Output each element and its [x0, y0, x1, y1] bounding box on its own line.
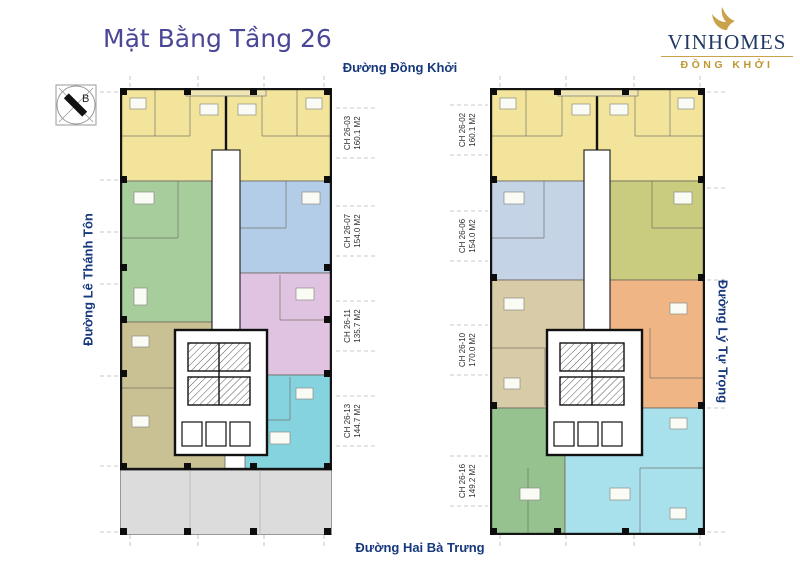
street-top: Đường Đồng Khởi: [280, 60, 520, 75]
street-bottom: Đường Hai Bà Trưng: [300, 540, 540, 555]
elevator-shafts: [554, 343, 624, 446]
brand-subtitle: ĐỒNG KHỞI: [653, 59, 800, 71]
left-tower-plan: [120, 88, 332, 535]
podium-terrace: [120, 470, 332, 535]
unit-label-ch-26-03: CH 26-03 160.1 M2: [342, 101, 364, 165]
unit-label-ch-26-06: CH 26-06 154.0 M2: [457, 204, 479, 268]
corridor: [212, 150, 240, 330]
floor-plan-page: Mặt Bằng Tầng 26 VINHOMES ĐỒNG KHỞI B Đư…: [0, 0, 800, 565]
corridor: [584, 150, 610, 330]
street-right: Đường Lý Tự Trọng: [716, 257, 731, 427]
unit-label-ch-26-02: CH 26-02 160.1 M2: [457, 98, 479, 162]
unit-label-ch-26-10: CH 26-10 170.0 M2: [457, 318, 479, 382]
unit-label-ch-26-07: CH 26-07 154.0 M2: [342, 199, 364, 263]
street-left: Đường Lê Thánh Tôn: [81, 195, 96, 365]
right-tower-plan: [490, 88, 705, 535]
brand-divider: [661, 56, 793, 57]
page-title: Mặt Bằng Tầng 26: [103, 24, 332, 53]
elevator-shafts: [182, 343, 250, 446]
north-indicator-icon: B: [55, 84, 97, 126]
unit-label-ch-26-11: CH 26-11 135.7 M2: [342, 294, 364, 358]
brand-name: VINHOMES: [653, 32, 800, 53]
unit-label-ch-26-13: CH 26-13 144.7 M2: [342, 389, 364, 453]
compass-north-label: B: [82, 93, 89, 105]
brand-logo: VINHOMES ĐỒNG KHỞI: [653, 6, 800, 71]
unit-label-ch-26-16: CH 26-16 149.2 M2: [457, 449, 479, 513]
brand-bird-icon: [709, 6, 745, 32]
